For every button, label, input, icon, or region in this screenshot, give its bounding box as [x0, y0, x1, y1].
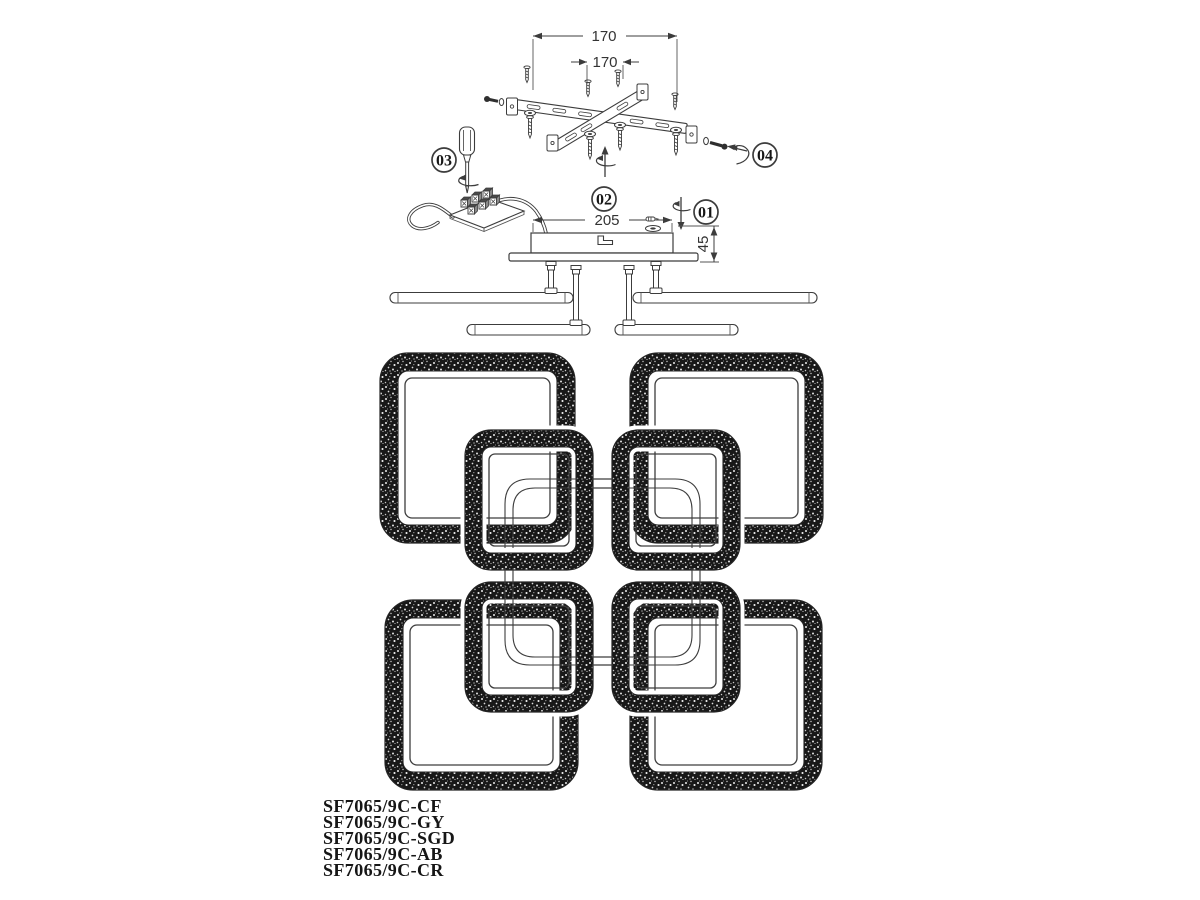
dimension-label: 170 — [591, 28, 616, 45]
dimension-label: 205 — [594, 212, 619, 229]
page-background — [0, 0, 1200, 900]
bracket-flange — [686, 126, 697, 143]
nut-icon — [585, 131, 596, 136]
washer-icon — [499, 99, 503, 106]
screw-icon — [646, 217, 655, 221]
canopy-baseplate — [509, 253, 698, 261]
step-number: 01 — [698, 205, 714, 222]
dimension-label: 170 — [592, 54, 617, 71]
arm-mount-nut — [650, 288, 662, 294]
bracket-flange — [507, 98, 518, 115]
diagram-canvas: 170 170 — [0, 0, 1200, 900]
model-number-line: SF7065/9C-CR — [323, 860, 444, 880]
arm-mount-nut — [545, 288, 557, 294]
canopy-side-view — [509, 233, 698, 261]
arm-mount-nut — [570, 320, 582, 326]
bracket-flange — [547, 135, 558, 151]
support-arm — [633, 293, 817, 304]
assembly-diagram: 170 170 — [0, 0, 1200, 900]
nut-icon — [671, 127, 682, 132]
support-arm — [390, 293, 573, 304]
step-number: 03 — [436, 153, 452, 170]
arm-mount-nut — [623, 320, 635, 326]
model-number-list: SF7065/9C-CF SF7065/9C-GY SF7065/9C-SGD … — [323, 796, 455, 880]
nut-icon — [525, 110, 536, 115]
bracket-flange — [637, 84, 648, 100]
dimension-label: 45 — [695, 236, 712, 253]
step-number: 04 — [757, 148, 773, 165]
support-arm — [467, 325, 590, 336]
step-number: 02 — [596, 192, 612, 209]
nut-icon — [615, 122, 626, 127]
support-arm — [615, 325, 738, 336]
washer-icon — [704, 137, 709, 144]
